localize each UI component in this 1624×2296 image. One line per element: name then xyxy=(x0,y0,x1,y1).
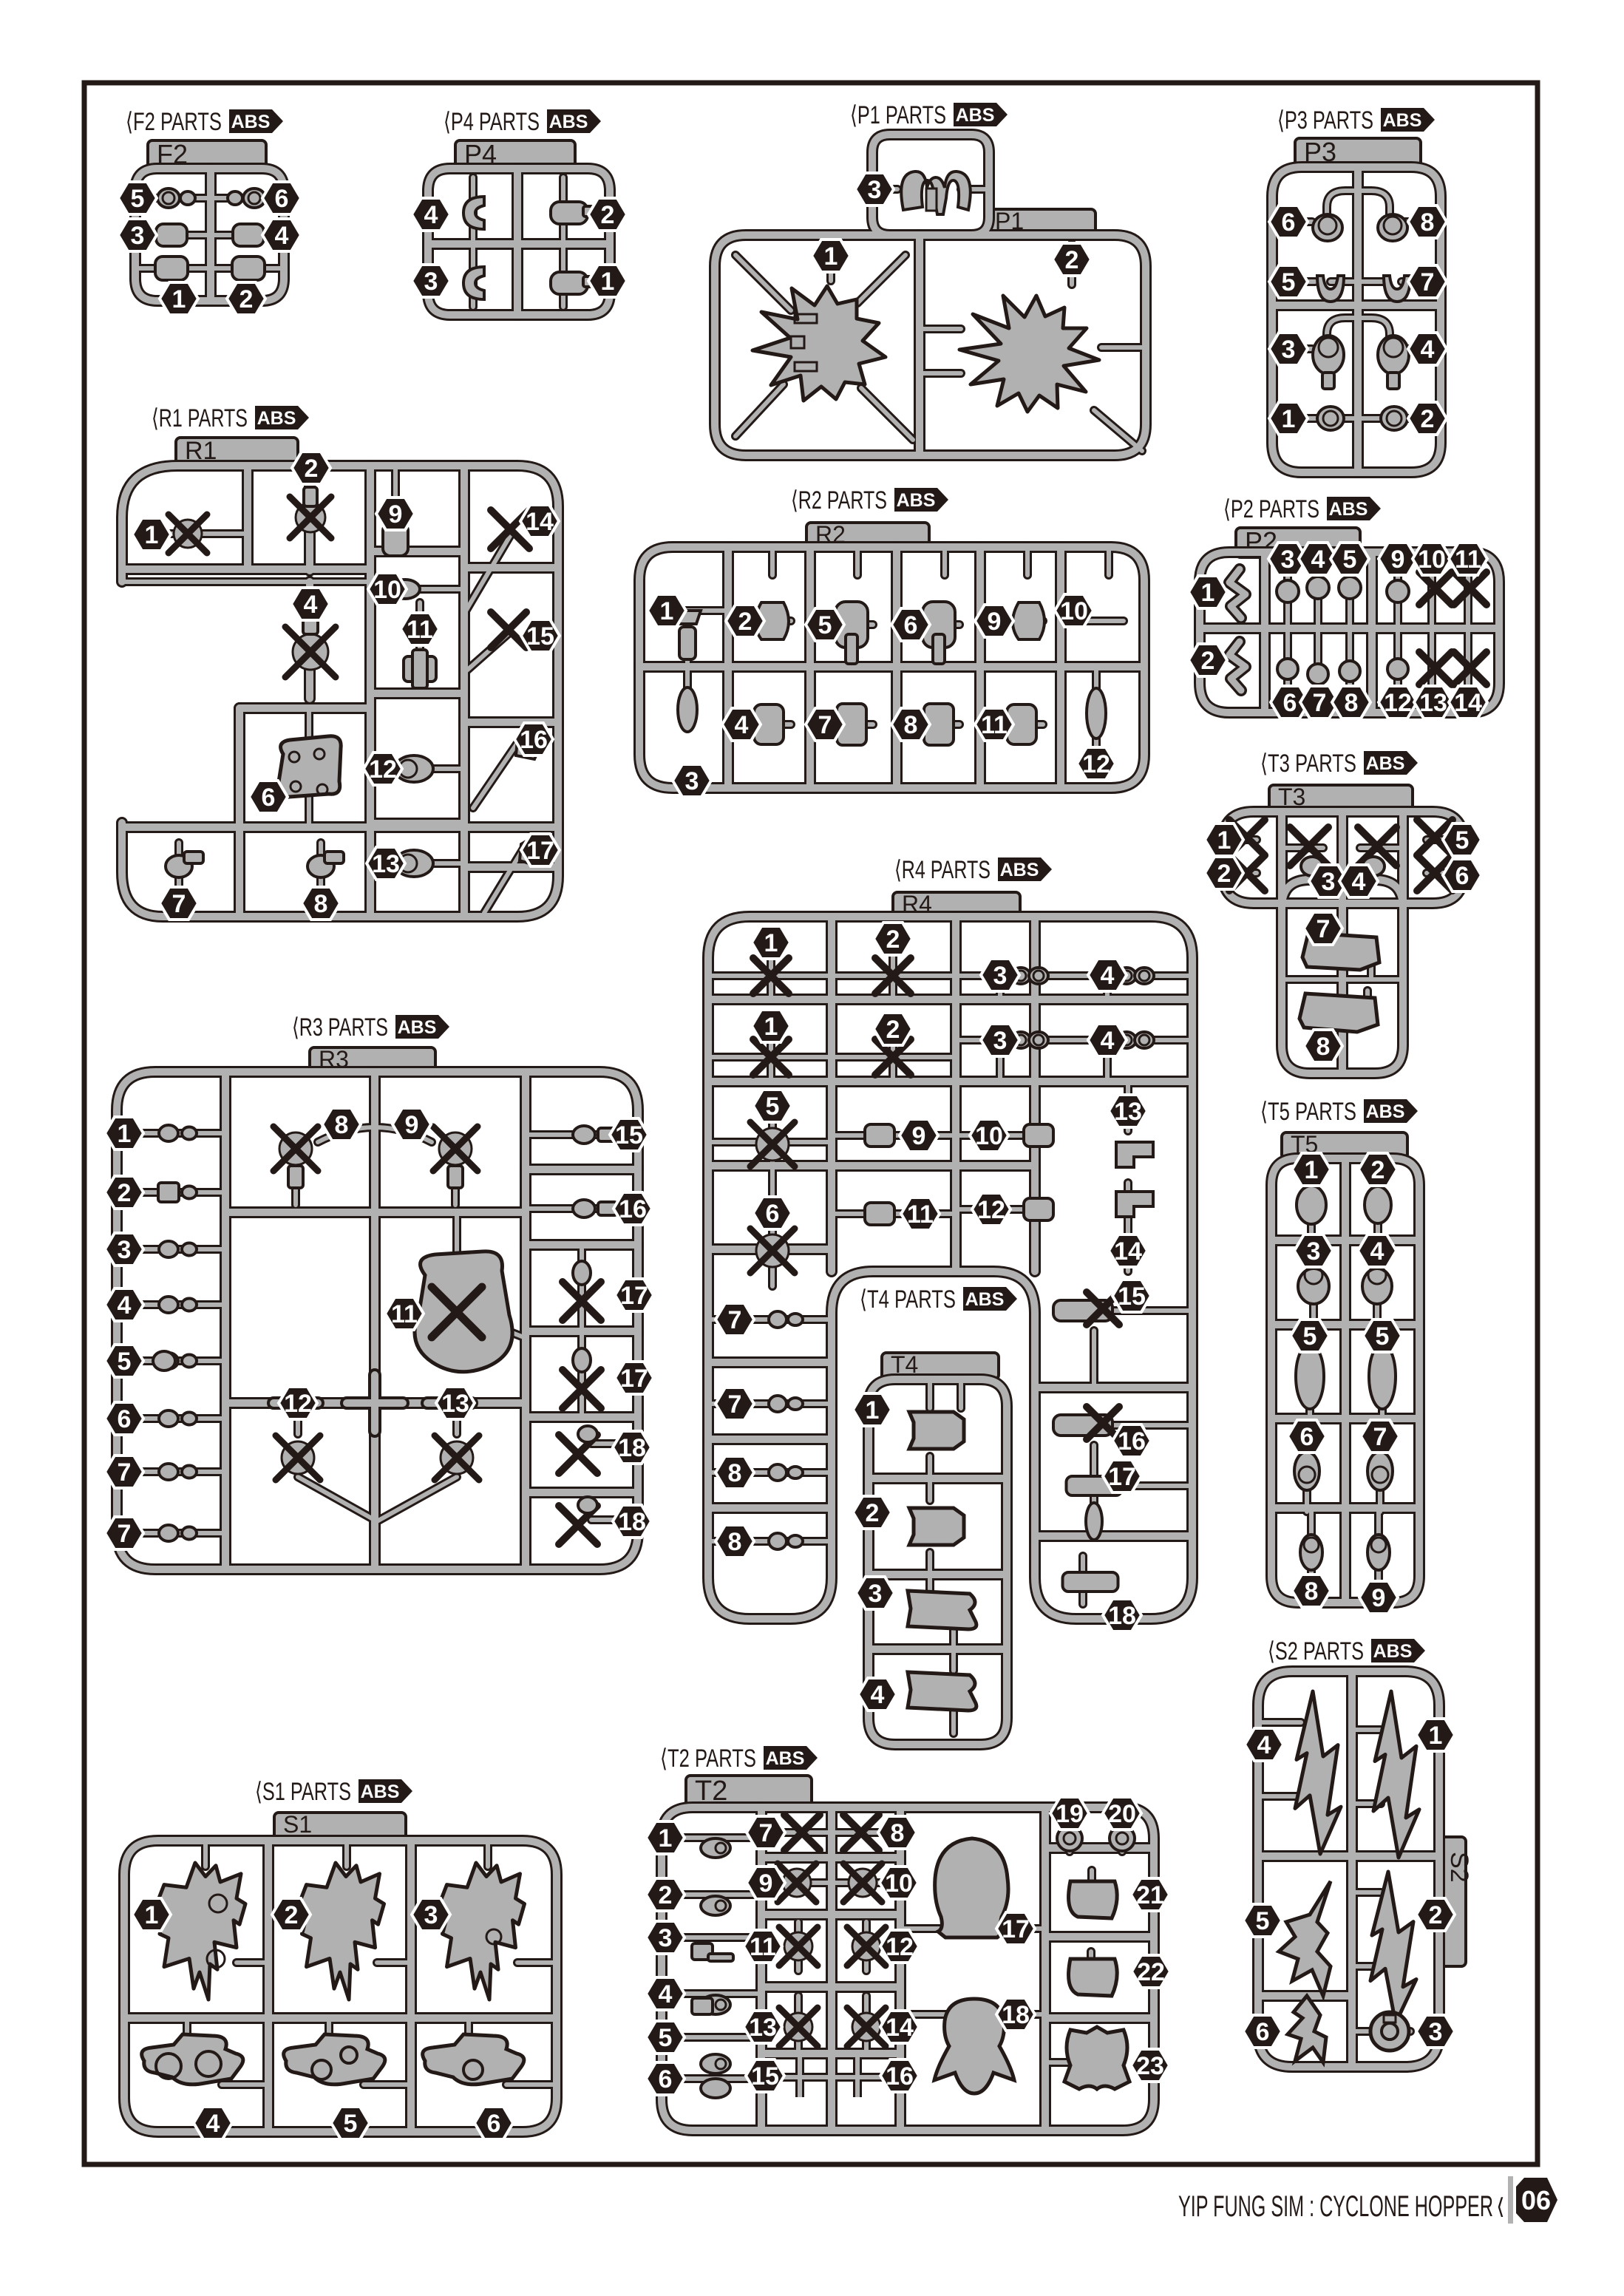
svg-text:4: 4 xyxy=(1421,336,1435,364)
svg-text:2: 2 xyxy=(601,201,615,229)
svg-text:13: 13 xyxy=(749,2014,777,2042)
svg-text:12: 12 xyxy=(1082,750,1110,778)
svg-text:ABS: ABS xyxy=(1373,1641,1413,1662)
svg-text:6: 6 xyxy=(1282,208,1296,237)
svg-text:6: 6 xyxy=(1300,1423,1314,1451)
svg-text:1: 1 xyxy=(145,1901,159,1929)
svg-text:4: 4 xyxy=(424,201,438,229)
svg-text:8: 8 xyxy=(728,1459,742,1487)
svg-text:8: 8 xyxy=(1421,208,1435,237)
svg-text:⟨P1 PARTS: ⟨P1 PARTS xyxy=(850,101,946,129)
svg-text:7: 7 xyxy=(118,1520,132,1548)
svg-text:13: 13 xyxy=(1419,689,1447,717)
svg-text:17: 17 xyxy=(1002,1915,1030,1943)
svg-text:3: 3 xyxy=(993,1027,1008,1055)
svg-text:4: 4 xyxy=(206,2110,220,2138)
svg-text:1: 1 xyxy=(1429,1722,1443,1750)
svg-text:11: 11 xyxy=(391,1300,418,1328)
svg-text:3: 3 xyxy=(1322,868,1336,896)
svg-text:6: 6 xyxy=(766,1200,780,1228)
svg-text:8: 8 xyxy=(335,1111,349,1139)
svg-text:4: 4 xyxy=(871,1681,885,1709)
svg-text:16: 16 xyxy=(520,726,548,754)
svg-text:ABS: ABS xyxy=(549,112,588,132)
svg-text:5: 5 xyxy=(766,1093,780,1121)
svg-text:7: 7 xyxy=(759,1819,773,1847)
svg-text:2: 2 xyxy=(659,1881,673,1909)
svg-text:2: 2 xyxy=(738,608,752,636)
svg-text:2: 2 xyxy=(886,925,900,954)
svg-text:1: 1 xyxy=(764,929,778,957)
svg-text:16: 16 xyxy=(1118,1427,1146,1456)
svg-text:8: 8 xyxy=(1345,689,1359,717)
svg-text:4: 4 xyxy=(275,222,289,250)
svg-text:8: 8 xyxy=(728,1528,742,1556)
svg-text:3: 3 xyxy=(1307,1237,1321,1266)
svg-text:1: 1 xyxy=(172,285,186,313)
svg-text:4: 4 xyxy=(1352,868,1366,896)
svg-text:5: 5 xyxy=(1376,1322,1390,1351)
svg-text:2: 2 xyxy=(118,1179,132,1207)
svg-text:1: 1 xyxy=(866,1396,880,1424)
svg-text:5: 5 xyxy=(1455,826,1470,855)
svg-text:2: 2 xyxy=(1217,860,1231,888)
svg-text:7: 7 xyxy=(172,890,186,918)
svg-text:19: 19 xyxy=(1056,1800,1084,1828)
svg-text:15: 15 xyxy=(526,622,554,651)
svg-text:18: 18 xyxy=(1108,1602,1136,1630)
svg-text:6: 6 xyxy=(904,611,918,639)
svg-text:⟨R1 PARTS: ⟨R1 PARTS xyxy=(152,404,248,432)
svg-text:11: 11 xyxy=(1455,546,1481,574)
svg-text:11: 11 xyxy=(907,1200,934,1229)
svg-text:12: 12 xyxy=(1384,689,1412,717)
svg-text:2: 2 xyxy=(1429,1901,1443,1929)
svg-text:7: 7 xyxy=(1421,268,1435,296)
svg-text:5: 5 xyxy=(344,2110,358,2138)
svg-text:1: 1 xyxy=(118,1120,132,1148)
svg-text:3: 3 xyxy=(131,222,145,250)
svg-text:10: 10 xyxy=(373,576,401,604)
svg-text:14: 14 xyxy=(1114,1237,1142,1266)
svg-text:⟨R4 PARTS: ⟨R4 PARTS xyxy=(894,856,991,884)
svg-text:ABS: ABS xyxy=(766,1748,805,1769)
svg-text:6: 6 xyxy=(659,2065,673,2093)
svg-text:6: 6 xyxy=(1455,862,1470,890)
svg-text:1: 1 xyxy=(145,521,159,549)
svg-text:18: 18 xyxy=(1002,2001,1030,2029)
svg-text:14: 14 xyxy=(526,508,554,536)
svg-text:12: 12 xyxy=(284,1390,312,1418)
svg-text:7: 7 xyxy=(728,1390,742,1419)
svg-text:2: 2 xyxy=(239,285,254,313)
svg-text:ABS: ABS xyxy=(398,1017,437,1038)
svg-text:5: 5 xyxy=(1256,1907,1270,1935)
svg-text:6: 6 xyxy=(262,784,276,812)
svg-text:4: 4 xyxy=(304,591,318,619)
svg-text:7: 7 xyxy=(1316,915,1331,943)
svg-text:5: 5 xyxy=(659,2024,673,2052)
svg-text:1: 1 xyxy=(1305,1156,1319,1184)
svg-text:17: 17 xyxy=(620,1282,648,1310)
svg-text:3: 3 xyxy=(1282,336,1296,364)
svg-text:S1: S1 xyxy=(283,1811,312,1838)
svg-text:16: 16 xyxy=(619,1195,647,1223)
svg-text:16: 16 xyxy=(886,2062,914,2090)
svg-text:1: 1 xyxy=(660,597,674,625)
svg-text:⟨R2 PARTS: ⟨R2 PARTS xyxy=(791,486,887,514)
svg-text:4: 4 xyxy=(1370,1237,1385,1266)
svg-text:11: 11 xyxy=(981,711,1008,739)
svg-text:12: 12 xyxy=(886,1933,914,1961)
svg-text:⟨P2 PARTS: ⟨P2 PARTS xyxy=(1223,495,1319,523)
svg-text:12: 12 xyxy=(369,755,397,784)
svg-text:10: 10 xyxy=(885,1869,913,1898)
svg-text:ABS: ABS xyxy=(361,1782,400,1802)
svg-text:10: 10 xyxy=(1418,546,1446,574)
svg-text:2: 2 xyxy=(1421,405,1435,433)
svg-text:6: 6 xyxy=(275,185,289,213)
svg-text:20: 20 xyxy=(1108,1800,1136,1828)
svg-text:3: 3 xyxy=(868,176,882,204)
svg-text:8: 8 xyxy=(891,1819,905,1847)
svg-text:6: 6 xyxy=(1283,689,1297,717)
svg-text:11: 11 xyxy=(407,616,433,644)
svg-text:2: 2 xyxy=(305,455,319,483)
svg-text:ABS: ABS xyxy=(956,105,995,126)
svg-text:⟨R3 PARTS: ⟨R3 PARTS xyxy=(292,1013,388,1042)
svg-text:1: 1 xyxy=(1217,826,1231,855)
svg-text:5: 5 xyxy=(118,1348,132,1376)
svg-text:7: 7 xyxy=(728,1306,742,1334)
svg-text:9: 9 xyxy=(1372,1584,1386,1612)
svg-text:13: 13 xyxy=(441,1390,469,1418)
svg-text:4: 4 xyxy=(659,1980,673,2008)
svg-text:⟨P4 PARTS: ⟨P4 PARTS xyxy=(444,108,540,136)
svg-text:10: 10 xyxy=(1060,597,1088,625)
svg-text:15: 15 xyxy=(751,2062,779,2090)
svg-text:7: 7 xyxy=(118,1458,132,1487)
svg-text:3: 3 xyxy=(659,1924,673,1952)
svg-text:8: 8 xyxy=(1305,1577,1319,1606)
svg-text:⟨T4 PARTS: ⟨T4 PARTS xyxy=(860,1285,956,1314)
svg-text:4: 4 xyxy=(735,711,749,739)
svg-text:3: 3 xyxy=(1281,546,1295,574)
svg-text:12: 12 xyxy=(977,1196,1005,1224)
svg-text:2: 2 xyxy=(1371,1156,1385,1184)
svg-text:7: 7 xyxy=(1373,1423,1387,1451)
svg-text:1: 1 xyxy=(601,268,615,296)
svg-text:2: 2 xyxy=(1201,647,1215,675)
svg-text:S2: S2 xyxy=(1445,1852,1473,1883)
svg-text:1: 1 xyxy=(824,242,838,271)
svg-text:ABS: ABS xyxy=(1000,860,1039,880)
svg-text:3: 3 xyxy=(685,767,699,795)
svg-text:4: 4 xyxy=(1101,962,1115,990)
svg-text:6: 6 xyxy=(487,2110,501,2138)
svg-text:5: 5 xyxy=(1343,546,1357,574)
svg-text:9: 9 xyxy=(1391,546,1405,574)
svg-text:⟨T2 PARTS: ⟨T2 PARTS xyxy=(660,1745,756,1773)
svg-text:1: 1 xyxy=(659,1824,673,1852)
svg-text:3: 3 xyxy=(1429,2018,1443,2046)
svg-text:4: 4 xyxy=(1311,546,1325,574)
svg-text:9: 9 xyxy=(912,1122,926,1150)
svg-text:7: 7 xyxy=(1313,689,1327,717)
svg-text:5: 5 xyxy=(818,611,832,639)
svg-text:⟨F2 PARTS: ⟨F2 PARTS xyxy=(126,108,222,136)
svg-text:ABS: ABS xyxy=(1383,110,1422,131)
svg-text:5: 5 xyxy=(1282,268,1296,296)
svg-text:3: 3 xyxy=(118,1236,132,1264)
svg-text:4: 4 xyxy=(1101,1027,1115,1055)
svg-text:3: 3 xyxy=(424,268,438,296)
svg-text:8: 8 xyxy=(1316,1033,1331,1061)
svg-text:4: 4 xyxy=(118,1291,132,1319)
svg-text:ABS: ABS xyxy=(1366,1101,1405,1122)
svg-text:8: 8 xyxy=(314,890,328,918)
svg-text:14: 14 xyxy=(886,2014,914,2042)
svg-text:6: 6 xyxy=(118,1405,132,1433)
svg-text:8: 8 xyxy=(904,711,918,739)
svg-text:15: 15 xyxy=(1118,1283,1146,1311)
svg-text:11: 11 xyxy=(750,1933,776,1961)
svg-text:15: 15 xyxy=(615,1121,643,1149)
svg-text:⟨: ⟨ xyxy=(1496,2195,1505,2219)
svg-text:9: 9 xyxy=(759,1869,773,1898)
svg-text:9: 9 xyxy=(389,500,403,529)
svg-text:3: 3 xyxy=(869,1580,883,1608)
svg-text:ABS: ABS xyxy=(897,490,936,511)
svg-text:1: 1 xyxy=(1201,579,1215,607)
svg-text:23: 23 xyxy=(1136,2052,1164,2080)
svg-text:ABS: ABS xyxy=(965,1289,1005,1310)
svg-text:18: 18 xyxy=(618,1508,646,1536)
svg-text:13: 13 xyxy=(1114,1098,1142,1126)
svg-text:⟨S1 PARTS: ⟨S1 PARTS xyxy=(255,1778,351,1806)
svg-text:9: 9 xyxy=(988,608,1002,636)
svg-text:2: 2 xyxy=(1065,246,1079,274)
svg-text:1: 1 xyxy=(764,1013,778,1041)
svg-text:5: 5 xyxy=(131,185,145,213)
svg-text:21: 21 xyxy=(1136,1881,1164,1909)
svg-text:06: 06 xyxy=(1521,2185,1551,2215)
svg-text:⟨T3 PARTS: ⟨T3 PARTS xyxy=(1260,750,1356,778)
svg-text:4: 4 xyxy=(1257,1731,1271,1759)
svg-text:2: 2 xyxy=(886,1016,900,1044)
svg-text:⟨S2 PARTS: ⟨S2 PARTS xyxy=(1268,1637,1364,1665)
svg-text:ABS: ABS xyxy=(1366,753,1405,774)
svg-text:9: 9 xyxy=(405,1111,419,1139)
svg-text:ABS: ABS xyxy=(257,408,296,429)
svg-text:10: 10 xyxy=(975,1122,1003,1150)
svg-text:7: 7 xyxy=(818,711,832,739)
svg-text:ABS: ABS xyxy=(231,112,271,132)
svg-text:⟨P3 PARTS: ⟨P3 PARTS xyxy=(1277,106,1373,135)
svg-text:14: 14 xyxy=(1454,689,1482,717)
svg-text:3: 3 xyxy=(424,1901,438,1929)
svg-text:5: 5 xyxy=(1303,1322,1317,1351)
svg-text:YIP FUNG SIM : CYCLONE HOPPER: YIP FUNG SIM : CYCLONE HOPPER xyxy=(1178,2190,1493,2223)
svg-text:17: 17 xyxy=(526,837,554,865)
svg-text:17: 17 xyxy=(1108,1463,1136,1491)
svg-text:ABS: ABS xyxy=(1329,499,1368,520)
svg-text:3: 3 xyxy=(993,962,1008,990)
svg-text:18: 18 xyxy=(618,1434,646,1462)
svg-text:6: 6 xyxy=(1256,2018,1270,2046)
svg-text:22: 22 xyxy=(1137,1958,1165,1986)
svg-text:2: 2 xyxy=(285,1901,299,1929)
svg-text:⟨T5 PARTS: ⟨T5 PARTS xyxy=(1260,1098,1356,1126)
svg-text:1: 1 xyxy=(1282,405,1296,433)
svg-text:2: 2 xyxy=(866,1499,880,1527)
svg-text:13: 13 xyxy=(372,850,400,878)
svg-text:17: 17 xyxy=(620,1365,648,1393)
